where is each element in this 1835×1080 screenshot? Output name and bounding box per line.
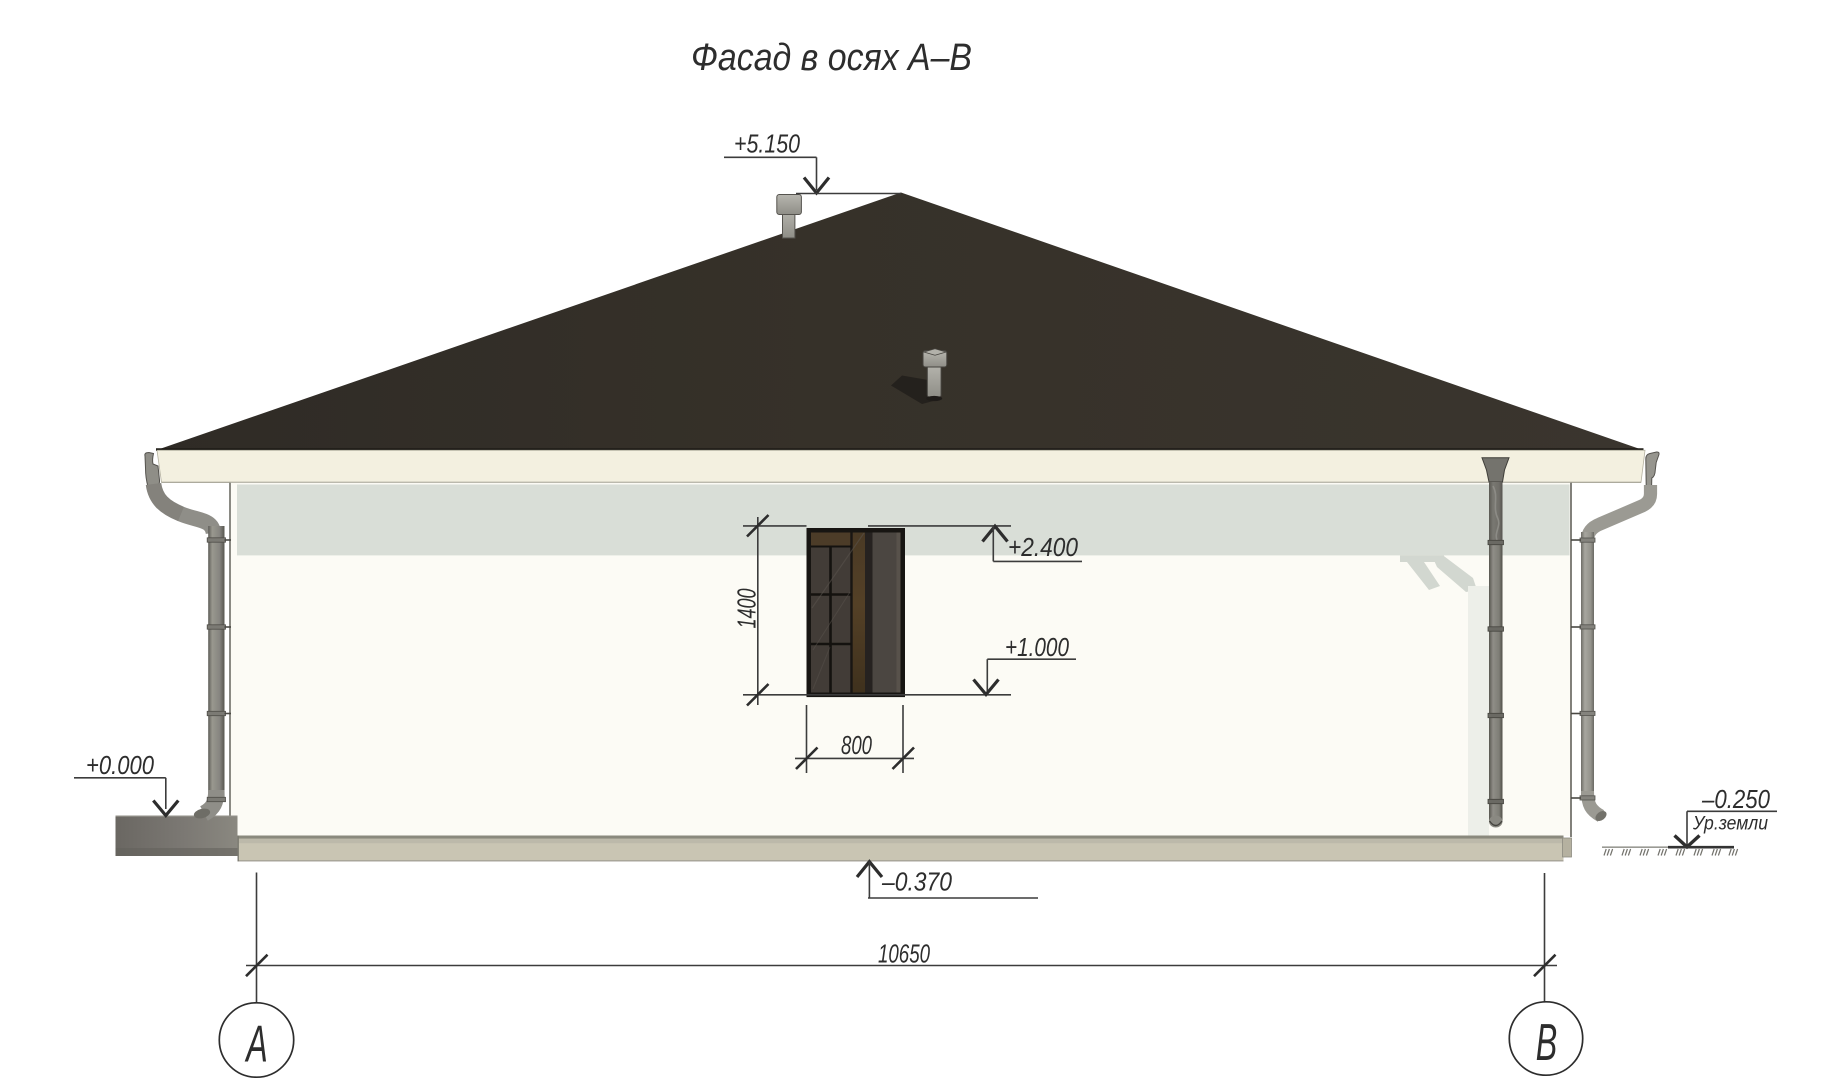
- svg-text:+1.000: +1.000: [1005, 632, 1069, 662]
- svg-text:А: А: [244, 1016, 268, 1074]
- svg-text:Ур.земли: Ур.земли: [1692, 813, 1768, 835]
- svg-text:–0.370: –0.370: [881, 867, 952, 897]
- svg-text:1400: 1400: [732, 588, 762, 628]
- svg-text:Фасад в осях А–В: Фасад в осях А–В: [691, 37, 972, 79]
- svg-text:–0.250: –0.250: [1701, 784, 1770, 814]
- svg-text:+5.150: +5.150: [734, 129, 800, 159]
- svg-text:+0.000: +0.000: [86, 750, 154, 780]
- svg-text:В: В: [1536, 1014, 1558, 1072]
- svg-text:10650: 10650: [878, 939, 930, 969]
- svg-text:+2.400: +2.400: [1008, 532, 1078, 562]
- svg-text:800: 800: [841, 730, 872, 760]
